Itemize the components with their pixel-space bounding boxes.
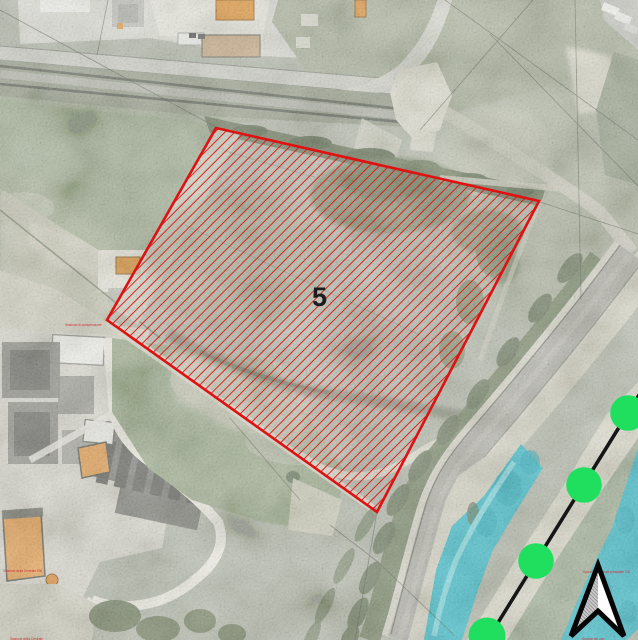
svg-text:5: 5 (312, 282, 327, 312)
svg-text:Stazione della Centrale ENI: Stazione della Centrale ENI (3, 569, 42, 573)
svg-text:Sponde del canale principale C: Sponde del canale principale CIS (583, 570, 630, 574)
svg-text:Stazione di compressione: Stazione di compressione (65, 323, 102, 327)
